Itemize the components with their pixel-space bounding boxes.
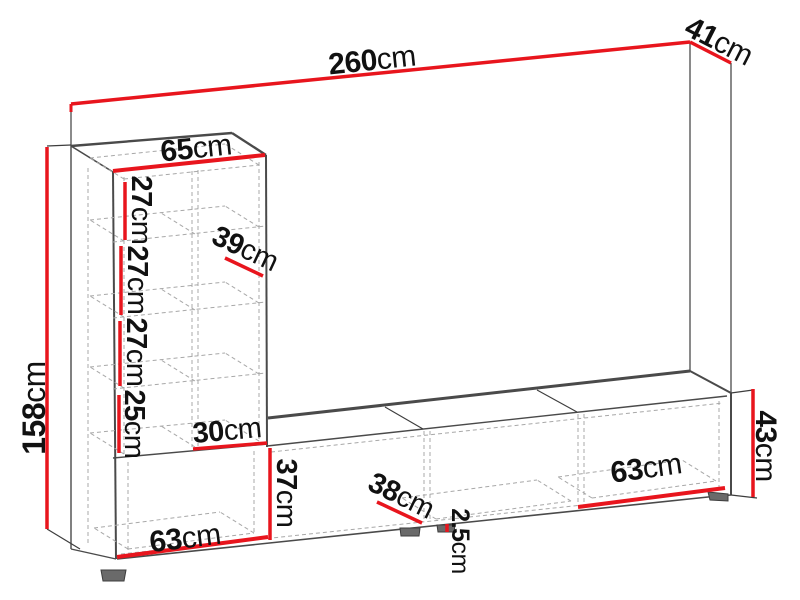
dim-left-opening-height: 37cm xyxy=(270,448,302,540)
dim-compartment-width: 30cm xyxy=(191,412,267,450)
dim-column-width: 65cm xyxy=(113,128,265,171)
dim-shelf-gap-1: 27cm xyxy=(125,176,157,245)
dim-tv-stand-height: 43cm xyxy=(731,389,783,498)
dim-shelf-gap-2: 27cm xyxy=(121,246,153,315)
dim-label-shelf-gap-2: 27cm xyxy=(121,246,153,315)
dim-label-total-depth: 41cm xyxy=(680,10,759,72)
dim-cabinet-depth: 38cm xyxy=(363,467,439,526)
dim-label-shelf-gap-1: 27cm xyxy=(125,176,157,245)
dim-left-opening-width: 63cm xyxy=(117,517,268,558)
dim-total-depth: 41cm xyxy=(680,10,759,72)
dim-label-tv-stand-height: 43cm xyxy=(750,410,783,481)
bookshelf-column xyxy=(71,133,268,559)
dim-label-shelf-gap-3: 27cm xyxy=(120,318,152,387)
dim-label-shelf-gap-4: 25cm xyxy=(118,390,150,459)
diagram-canvas: 260cm 41cm 158cm 65cm 27cm 27cm 27cm 25c… xyxy=(0,0,800,600)
dim-label-compartment-width: 30cm xyxy=(191,412,262,450)
dim-label-total-height: 158cm xyxy=(16,361,52,455)
dim-label-column-width: 65cm xyxy=(159,128,233,168)
dim-label-right-opening-width: 63cm xyxy=(608,447,683,490)
dim-shelf-gap-4: 25cm xyxy=(118,390,150,459)
dim-label-total-width: 260cm xyxy=(327,39,418,81)
dim-total-width: 260cm xyxy=(71,39,690,112)
dim-label-cabinet-depth: 38cm xyxy=(363,467,439,526)
dim-shelf-gap-3: 27cm xyxy=(120,318,152,387)
dim-plinth-height: 2.5cm xyxy=(446,508,474,574)
dim-label-left-opening-width: 63cm xyxy=(148,517,223,558)
furniture-dimension-diagram: 260cm 41cm 158cm 65cm 27cm 27cm 27cm 25c… xyxy=(0,0,800,600)
dim-label-plinth-height: 2.5cm xyxy=(446,508,474,574)
dim-label-left-opening-height: 37cm xyxy=(270,459,302,528)
dim-shelf-depth: 39cm xyxy=(207,220,283,278)
